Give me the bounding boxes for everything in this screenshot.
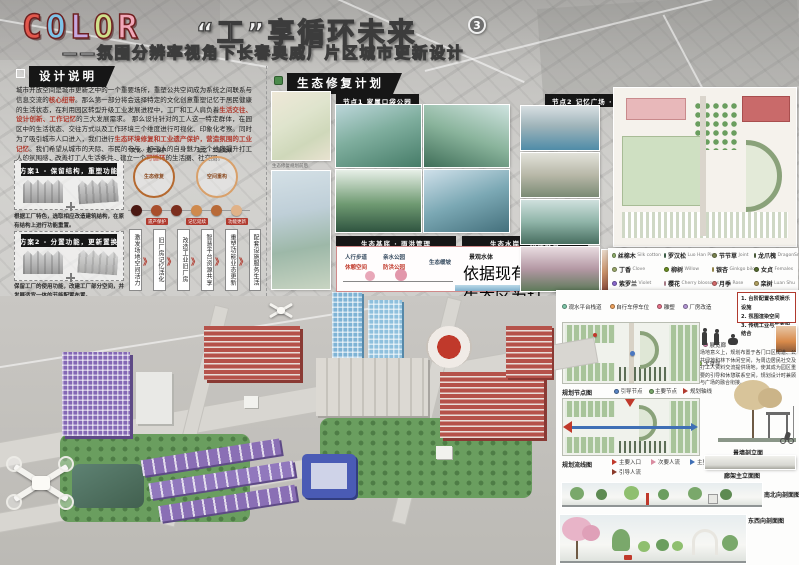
- waterfront-photo: [521, 200, 599, 244]
- red-brick-cluster: [204, 326, 300, 380]
- plan-node-caption: 规划节点图: [562, 388, 592, 397]
- factory-illustration: [77, 176, 119, 205]
- plus-icon: [66, 202, 75, 211]
- logo-letter: L: [70, 10, 90, 43]
- eco-node2-plan: [614, 88, 796, 246]
- strategy-strip: 改造工业旧厂房: [177, 229, 190, 291]
- drone-body: [32, 476, 50, 490]
- tree: [570, 487, 584, 500]
- plant-item: 节节草Joint: [712, 251, 751, 260]
- person-figure: [714, 333, 719, 345]
- section-ground-line: [343, 281, 453, 282]
- drone-rotor: [6, 456, 22, 472]
- factory-illustration: [23, 248, 63, 274]
- node-legend-item: 引导节点: [614, 387, 643, 395]
- plan-colonnade: [619, 441, 667, 453]
- tree: [596, 489, 607, 500]
- factory-illustration: [77, 247, 119, 276]
- chevron-icon: 》: [215, 256, 222, 268]
- strategy-strip: 旧厂房记忆活化: [153, 229, 166, 291]
- red-tower-building: [506, 326, 552, 378]
- drone-rotor: [58, 456, 74, 472]
- drone-body: [277, 307, 285, 314]
- plant-name-en: DragonSnatch: [778, 253, 799, 258]
- plant-name: 樱花: [668, 279, 680, 288]
- strategy-strip: 智慧平台资源共享: [201, 229, 214, 291]
- park-render-4: [424, 170, 509, 232]
- plant-item: 龙爪槐DragonSnatch: [754, 251, 795, 260]
- main-node-dot: [649, 389, 654, 394]
- white-slab-building: [136, 372, 172, 424]
- visitor-photo: [776, 326, 796, 352]
- facility-label: 雕塑: [664, 303, 675, 311]
- chevron-icon: 》: [143, 256, 150, 268]
- plant-item: 银杏Ginkgo bilo: [712, 265, 751, 274]
- flow-arrowhead: [691, 423, 698, 431]
- plant-color-dot: [664, 281, 666, 286]
- people-icon: [700, 328, 750, 346]
- plan-semicircle: [621, 331, 659, 369]
- chevron-icon: 》: [167, 256, 174, 268]
- red-housing-rows: [440, 372, 544, 438]
- plant-name: 紫罗兰: [619, 279, 637, 288]
- facility-item: 厂房改造: [683, 303, 712, 311]
- facility-dot: [683, 304, 688, 309]
- plant-name-en: Violet: [639, 281, 652, 286]
- process-tag: 记忆延续: [186, 218, 208, 225]
- node-legend-label: 引导节点: [621, 387, 643, 395]
- facility-label: 自行车停车位: [616, 303, 649, 311]
- landuse-map-before: [272, 92, 330, 160]
- plan-option-1-box: 方案1 - 保留结构，重塑功能: [14, 160, 124, 210]
- facility-item: 自行车停车位: [610, 303, 650, 311]
- process-dot: [231, 205, 242, 216]
- willow-tree: [612, 529, 630, 551]
- park-render-1: [336, 105, 421, 167]
- cycle-2-label: 记忆 · 工业延续: [197, 147, 232, 154]
- plan-pink-building: [626, 98, 686, 120]
- glass-tower-2: [368, 300, 402, 360]
- plant-item: 丝棉木Silk cotton: [612, 251, 661, 260]
- blossom-tree: [395, 269, 407, 281]
- logo-letter: O: [94, 10, 114, 43]
- glass-tower-1: [332, 292, 362, 358]
- plan-semicircle: [621, 405, 657, 441]
- tree: [672, 541, 683, 551]
- drone-icon: [266, 298, 296, 324]
- plant-name-en: Ginkgo bilo: [730, 267, 755, 272]
- facility-dot: [657, 304, 662, 309]
- plant-name: 栾树: [761, 279, 773, 288]
- plan-option-1-caption: 根据工厂特色，选取相应改造建筑结构，在原有结构上进行功能重置。: [14, 213, 124, 230]
- gallery-elevation-image: [705, 456, 795, 469]
- plant-color-dot: [754, 281, 759, 286]
- process-tag: 遗产保护: [146, 218, 168, 225]
- logo-letter: C: [22, 10, 42, 43]
- plant-color-dot: [664, 253, 666, 258]
- checkbox-icon: [16, 69, 25, 78]
- cyclist-icon: [780, 432, 794, 444]
- plaza-pool-photo: [521, 106, 599, 150]
- node-legend-label: 规划轴线: [690, 387, 712, 395]
- stadium-building: [426, 326, 472, 368]
- plan-green-block: [565, 437, 615, 453]
- plant-name-en: Silk cotton: [637, 253, 661, 258]
- process-dot: [171, 205, 182, 216]
- plaza-pavilion: [244, 396, 258, 408]
- paragraph-highlight: 核心纽带: [49, 96, 75, 104]
- tree: [658, 489, 669, 500]
- section-ns-caption: 南北向剖面图: [764, 490, 799, 499]
- purple-tower-building: [62, 352, 130, 436]
- plant-name: 银杏: [716, 265, 728, 274]
- eco-plan-header: 生态修复计划: [287, 73, 402, 94]
- logo-letter: R: [118, 10, 138, 43]
- plant-name-en: Luan Shu: [774, 281, 795, 286]
- facility-label: 观水平台栈道: [569, 303, 602, 311]
- garden-photo: [521, 247, 599, 291]
- paragraph-text: 的三大发展需求。: [76, 115, 129, 123]
- plant-name: 节节草: [719, 251, 737, 260]
- plan-red-hall: [742, 96, 790, 122]
- cycle-1-label: 文化 · 遗产保护: [131, 147, 166, 154]
- landuse-map-after: [272, 171, 330, 289]
- plus-icon: [66, 273, 75, 282]
- plan-green-block: [669, 325, 699, 381]
- main-flow-icon: [690, 459, 695, 465]
- design-note-header: 设计说明: [29, 66, 115, 87]
- plaza-pavilion: [436, 446, 452, 459]
- process-dot: [151, 205, 162, 216]
- flow-legend-item: 引导人流: [612, 468, 641, 476]
- plan-option-1-title: 方案1 - 保留结构，重塑功能: [21, 163, 117, 176]
- plan-green-block: [565, 401, 615, 417]
- node-legend-item: 主要节点: [649, 387, 678, 395]
- plan-flow-caption: 规划流线图: [562, 460, 592, 469]
- plan-flow-diagram: [562, 398, 700, 456]
- park-render-3: [336, 170, 421, 232]
- flow-legend-label: 次要人流: [658, 458, 680, 466]
- park-render-2: [424, 105, 509, 167]
- flow-legend-label: 主要入口: [619, 458, 641, 466]
- process-dot: [131, 205, 142, 216]
- facility-dot: [610, 304, 615, 309]
- plan-colonnade: [619, 367, 667, 381]
- plant-name: 女贞: [761, 265, 773, 274]
- plant-color-dot: [712, 253, 717, 258]
- drone-rotor: [6, 494, 22, 510]
- blue-u-building: [302, 454, 356, 498]
- guide-node-dot: [614, 389, 619, 394]
- plant-color-dot: [712, 281, 717, 286]
- entry-arrow: [563, 421, 572, 433]
- drone-rotor: [58, 494, 74, 510]
- plant-color-dot: [612, 253, 616, 258]
- tree: [624, 486, 639, 500]
- gallery-elevation-caption: 廊架主立面图: [724, 471, 760, 480]
- tree: [638, 541, 650, 552]
- factory-illustration: [23, 177, 63, 203]
- node-legend: 引导节点 主要节点 规划轴线: [614, 387, 712, 395]
- facility-item: 观水平台栈道: [562, 303, 602, 311]
- entry-arrow: [625, 399, 635, 407]
- leaf-icon: [274, 76, 283, 85]
- logo-letter: O: [46, 10, 66, 43]
- arch-structure: [692, 529, 718, 555]
- chevron-icon: 》: [191, 256, 198, 268]
- axis-arrow-icon: [683, 388, 688, 394]
- plan-option-2-title: 方案2 - 分置功能，更新置换: [21, 234, 117, 247]
- tree-canopy: [758, 388, 782, 408]
- plant-item: 栾树Luan Shu: [754, 279, 795, 288]
- plant-name-en: Females: [775, 267, 794, 272]
- cycle-diagram-2: 空间重构: [196, 156, 238, 198]
- plan-green-field: [622, 136, 702, 206]
- node-legend-item: 规划轴线: [683, 387, 712, 395]
- plant-name-en: Clove: [633, 267, 646, 272]
- process-dot: [191, 205, 202, 216]
- cycle-diagram-1: 生态修复: [133, 156, 175, 198]
- plant-color-dot: [754, 267, 759, 272]
- cycle-2-inner-label: 空间重构: [198, 158, 236, 196]
- plan-node-dot: [630, 351, 635, 356]
- tree: [722, 535, 738, 551]
- plant-item: 柳树Willow: [664, 265, 709, 274]
- note-line: 2. 氛围渲染空间: [741, 313, 792, 322]
- eco-label: 亲水公园: [383, 253, 405, 261]
- plan-node-dot: [593, 333, 597, 337]
- plant-color-dot: [664, 267, 669, 272]
- canopy-structure: [708, 494, 718, 504]
- subtitle: ——氛围分辨率视角下长春奥威厂片区城市更新设计: [62, 41, 465, 63]
- note-line: 1. 台阶配置各项娱乐设施: [741, 295, 792, 313]
- column-divider: [266, 66, 267, 296]
- person-sitting-figure: [728, 338, 738, 345]
- guide-flow-icon: [612, 469, 617, 475]
- cycle-1-inner-label: 生态修复: [135, 158, 173, 196]
- section-ns-strip: [562, 483, 762, 507]
- facility-dot: [562, 304, 567, 309]
- strategy-strip: 激发场地空间活力: [129, 229, 142, 291]
- process-dot: [211, 205, 222, 216]
- eco-label: 人行步道: [345, 253, 367, 261]
- red-structure: [646, 493, 649, 505]
- plant-name: 丝棉木: [618, 251, 636, 260]
- chevron-icon: 》: [239, 256, 246, 268]
- street-photo: [521, 153, 599, 197]
- node-legend-label: 主要节点: [655, 387, 677, 395]
- section-ew-caption: 东西向剖面图: [748, 516, 784, 525]
- plant-name: 丁香: [619, 265, 631, 274]
- pond: [72, 464, 144, 508]
- poster: C O L O R “工”享循环未来 3 ——氛围分辨率视角下长春奥威厂片区城市…: [0, 0, 799, 565]
- blossom-tree: [582, 525, 600, 541]
- facility-item: 雕塑: [657, 303, 675, 311]
- plant-item: 紫罗兰Violet: [612, 279, 661, 288]
- facility-label: 厂房改造: [689, 303, 711, 311]
- plant-name-en: Joint: [739, 253, 749, 258]
- title-badge: 3: [468, 16, 486, 34]
- tree: [656, 539, 669, 551]
- blossom-tree: [365, 271, 375, 281]
- plant-item: 月季Rose: [712, 279, 751, 288]
- eco-label: 休憩空间: [345, 263, 367, 271]
- flow-legend-item: 次要人流: [651, 458, 680, 466]
- drone-icon: [6, 454, 76, 514]
- tree: [688, 487, 702, 500]
- person-figure: [702, 332, 707, 345]
- plan-axis: [700, 96, 706, 236]
- plan-option-2-box: 方案2 - 分置功能，更新置换: [14, 231, 124, 281]
- plant-name-en: Willow: [685, 267, 700, 272]
- pergola-post: [768, 414, 770, 438]
- small-vehicle: [624, 555, 632, 560]
- eco-maps-caption: 生态修复规划前后: [272, 163, 308, 169]
- plant-color-dot: [754, 253, 756, 258]
- plant-name-en: Rose: [733, 281, 744, 286]
- strategy-strip: 配套设施服务生活: [249, 229, 261, 291]
- plant-item: 女贞Females: [754, 265, 795, 274]
- plant-name: 柳树: [671, 265, 683, 274]
- main-entry-icon: [612, 459, 617, 465]
- plant-color-dot: [612, 281, 617, 286]
- plan-semicircle-plaza: [710, 140, 782, 212]
- section-ew-strip: [560, 515, 746, 563]
- plant-color-dot: [612, 267, 617, 272]
- secondary-flow-icon: [651, 459, 656, 465]
- main-flow-line: [571, 426, 691, 429]
- design-notes-box: 1. 台阶配置各项娱乐设施 2. 氛围渲染空间 3. 传统工业与生态相结合: [737, 292, 796, 323]
- plant-legend-card: 丝棉木Silk cotton 罗汉松Luo Han Pine 节节草Joint …: [608, 248, 798, 293]
- eco-label: 生态缓坡: [429, 258, 451, 266]
- plant-name: 龙爪槐: [758, 251, 776, 260]
- tree: [720, 489, 732, 500]
- plant-item: 樱花Cherry blossoms: [664, 279, 709, 288]
- flow-legend-label: 引导人流: [619, 468, 641, 476]
- plant-item: 罗汉松Luo Han Pine: [664, 251, 709, 260]
- plant-name: 罗汉松: [668, 251, 686, 260]
- plant-color-dot: [712, 267, 714, 272]
- logo-color: C O L O R: [22, 10, 141, 43]
- process-tag: 功能更新: [226, 218, 248, 225]
- masterplan-render: [0, 296, 556, 565]
- plant-item: 丁香Clove: [612, 265, 661, 274]
- flow-legend-item: 主要入口: [612, 458, 641, 466]
- mall-roof-building: [316, 358, 428, 416]
- plant-name: 月季: [719, 279, 731, 288]
- strategy-strip: 重塑功能业态更新: [225, 229, 238, 291]
